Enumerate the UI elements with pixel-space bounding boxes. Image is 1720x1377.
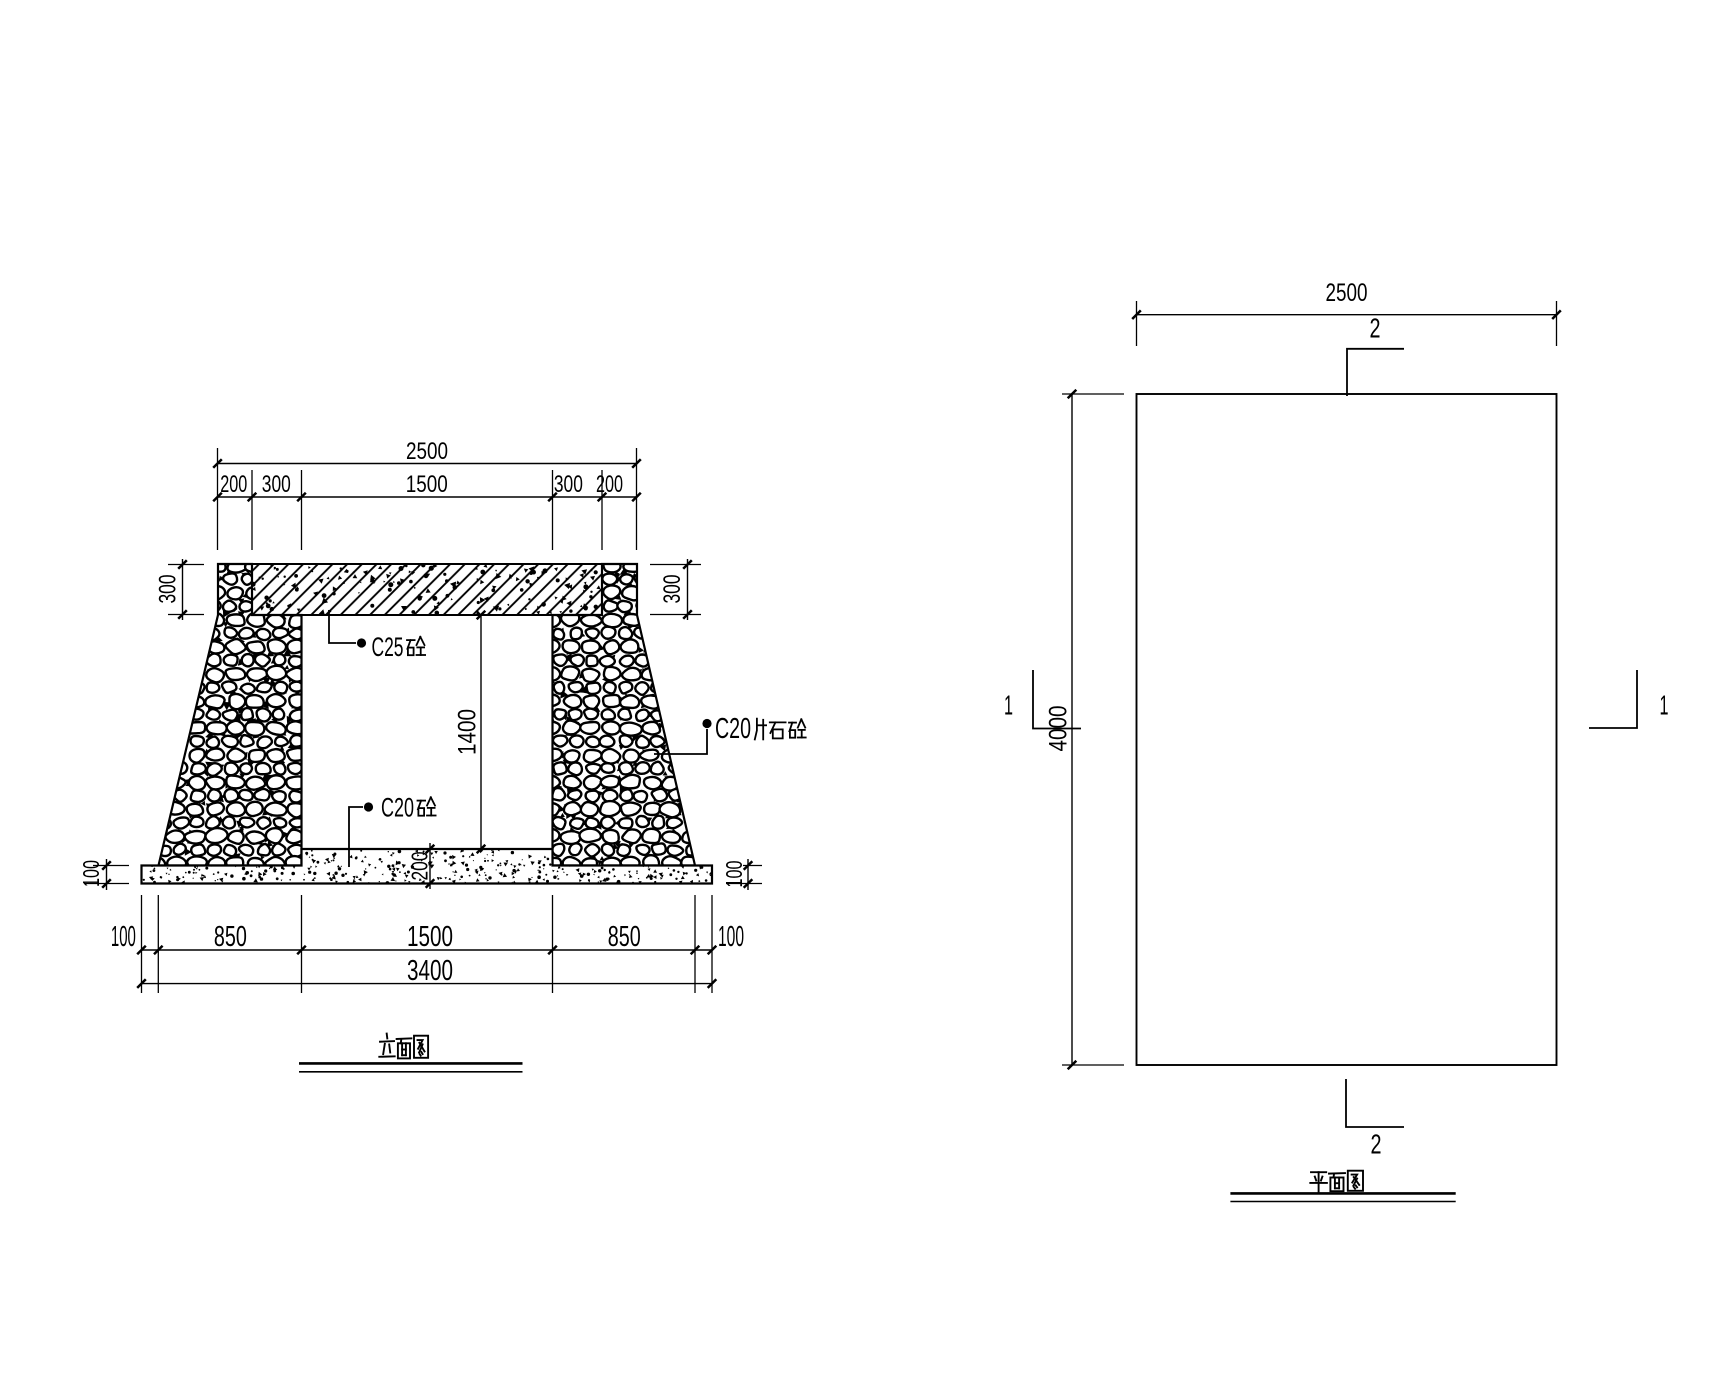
svg-text:2500: 2500 — [406, 438, 448, 465]
svg-text:1400: 1400 — [455, 709, 482, 755]
svg-text:1500: 1500 — [406, 471, 448, 498]
svg-text:300: 300 — [659, 575, 686, 604]
svg-text:1: 1 — [1660, 690, 1669, 721]
svg-text:C25: C25 — [372, 632, 404, 662]
svg-text:2: 2 — [1370, 313, 1381, 344]
svg-text:100: 100 — [111, 920, 136, 952]
svg-text:100: 100 — [718, 920, 744, 952]
svg-text:1500: 1500 — [407, 920, 453, 952]
svg-text:200: 200 — [220, 471, 247, 498]
svg-text:300: 300 — [155, 575, 182, 604]
svg-text:1: 1 — [1004, 690, 1013, 721]
svg-text:100: 100 — [78, 860, 104, 887]
svg-text:300: 300 — [554, 471, 583, 498]
svg-text:100: 100 — [721, 860, 747, 887]
svg-text:3400: 3400 — [407, 954, 453, 986]
svg-text:200: 200 — [407, 851, 433, 880]
svg-text:300: 300 — [262, 471, 291, 498]
svg-text:C20: C20 — [715, 712, 751, 744]
svg-text:C20: C20 — [381, 792, 414, 822]
svg-text:2500: 2500 — [1326, 280, 1368, 307]
svg-text:850: 850 — [214, 920, 247, 952]
svg-text:850: 850 — [608, 920, 641, 952]
svg-text:2: 2 — [1371, 1129, 1382, 1160]
svg-text:200: 200 — [596, 471, 623, 498]
